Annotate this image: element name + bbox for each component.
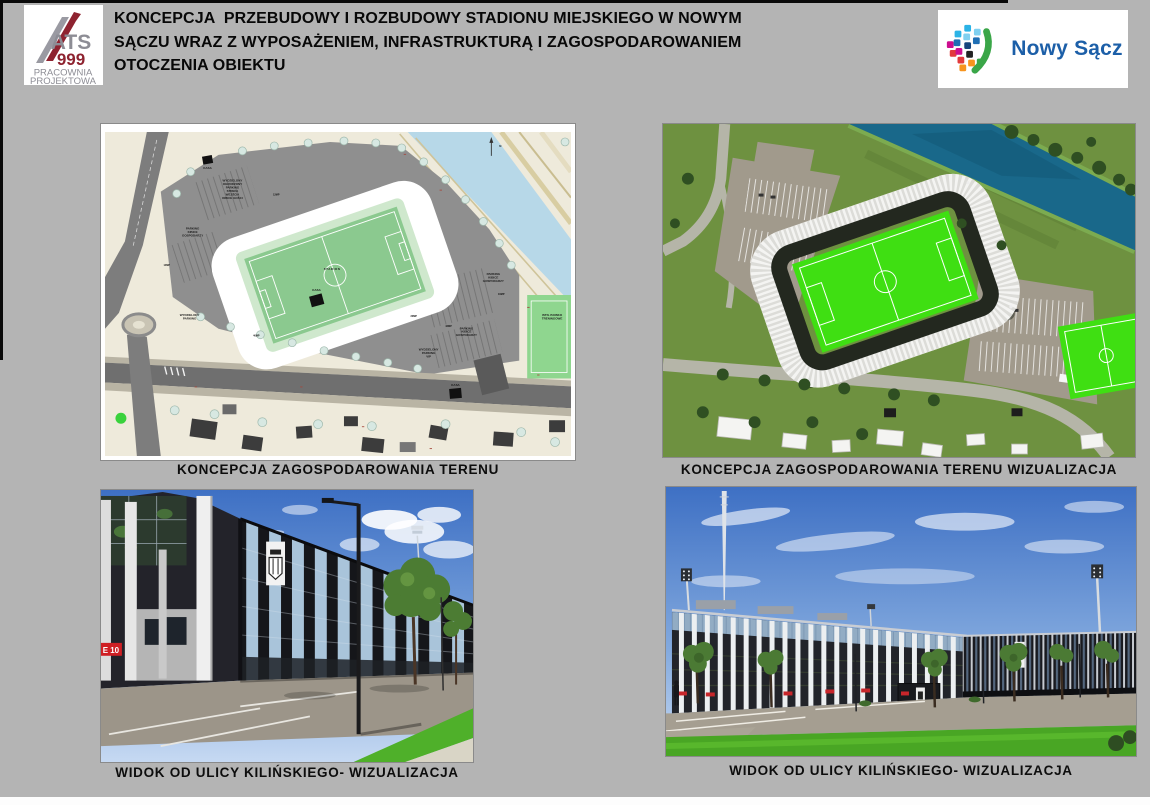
svg-text:KASA: KASA: [312, 288, 321, 292]
city-logo-text: Nowy Sącz: [1011, 37, 1123, 61]
svg-text:KASA: KASA: [203, 166, 212, 170]
svg-text:16MP: 16MP: [498, 293, 505, 296]
site-plan-image: WYDZIELONY OGRODZONY PARKING STREFA WEJŚ…: [100, 123, 576, 461]
page-top-edge: [0, 0, 1008, 3]
ats-pracownia-logo: ATS 999 PRACOWNIA PROJEKTOWA: [24, 5, 103, 85]
svg-text:999: 999: [57, 50, 85, 69]
street-view-1-image: E 10: [100, 489, 474, 763]
svg-text:PROJEKTOWA: PROJEKTOWA: [30, 76, 97, 85]
site-plan-viz-image: [662, 123, 1136, 458]
svg-text:VIP: VIP: [426, 355, 431, 359]
page-bottom-edge: [0, 797, 1150, 805]
svg-text:KASA: KASA: [451, 383, 460, 387]
club-crest-icon: [266, 542, 285, 586]
svg-text:E 10: E 10: [103, 646, 120, 655]
stand-structure-left: [101, 492, 240, 689]
page-title: KONCEPCJA PRZEBUDOWY I ROZBUDOWY STADION…: [114, 7, 914, 78]
street-view-2-image: [665, 486, 1137, 757]
page-left-edge: [0, 0, 3, 360]
svg-text:GOSPODARZY: GOSPODARZY: [182, 233, 203, 237]
gate-sign: E 10: [101, 643, 122, 656]
svg-text:TRENINGOWE: TRENINGOWE: [542, 316, 562, 320]
stadium-block-right: [963, 632, 1136, 698]
viz-training-pitch: [1058, 312, 1135, 399]
svg-text:STADION: STADION: [324, 267, 341, 271]
svg-text:12MP: 12MP: [273, 194, 280, 197]
svg-text:GOSPODARZY: GOSPODARZY: [483, 279, 504, 283]
street-view-2-caption: WIDOK OD ULICY KILIŃSKIEGO- WIZUALIZACJA: [665, 763, 1137, 778]
svg-text:42MP: 42MP: [445, 325, 452, 328]
map-green-marker: [115, 413, 126, 424]
nowy-sacz-logo: Nowy Sącz: [938, 10, 1128, 88]
svg-text:N: N: [499, 144, 501, 148]
svg-text:GOSPODARZY: GOSPODARZY: [456, 333, 477, 337]
ats-logo-icon: ATS 999 PRACOWNIA PROJEKTOWA: [24, 5, 103, 85]
svg-text:40MP: 40MP: [253, 335, 260, 338]
svg-text:20MP: 20MP: [410, 315, 417, 318]
street-view-1-caption: WIDOK OD ULICY KILIŃSKIEGO- WIZUALIZACJA: [100, 765, 474, 780]
svg-text:PARKING: PARKING: [183, 316, 197, 320]
svg-text:14MP: 14MP: [164, 264, 171, 267]
map-training-field: [527, 295, 571, 378]
site-plan-viz-caption: KONCEPCJA ZAGOSPODAROWANIA TERENU WIZUAL…: [662, 462, 1136, 477]
site-plan-caption: KONCEPCJA ZAGOSPODAROWANIA TERENU: [100, 462, 576, 477]
hand-mosaic-icon: [943, 19, 1001, 79]
